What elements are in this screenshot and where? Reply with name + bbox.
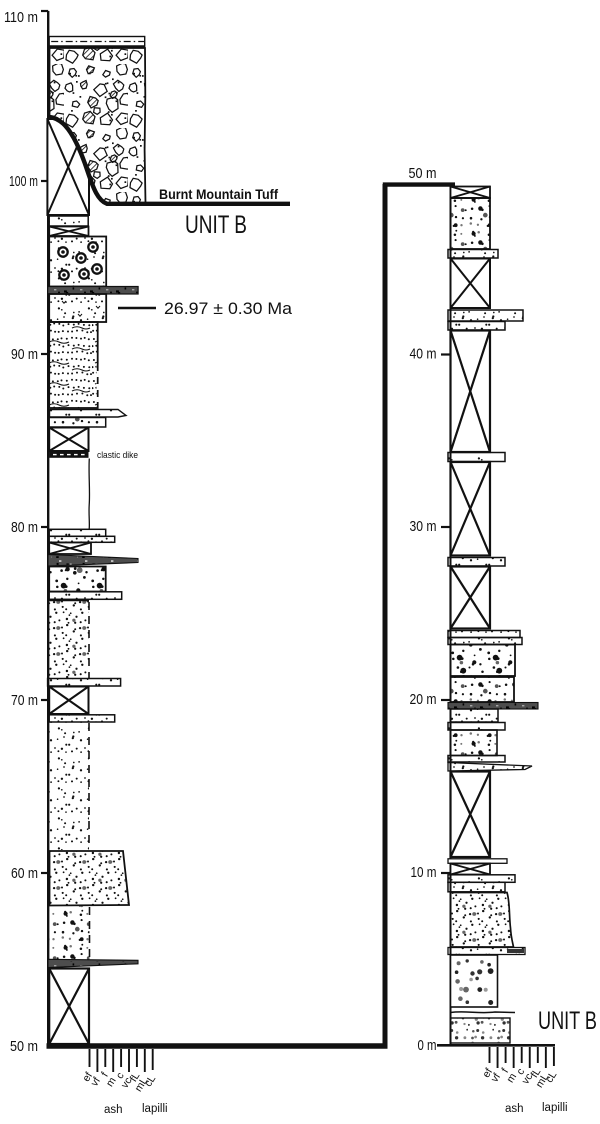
svg-text:UNIT B: UNIT B — [185, 211, 247, 239]
svg-text:lapilli: lapilli — [542, 1102, 568, 1114]
svg-text:ash: ash — [505, 1103, 524, 1115]
svg-text:100 m: 100 m — [9, 173, 38, 190]
svg-text:40 m: 40 m — [410, 346, 437, 363]
svg-text:clastic dike: clastic dike — [97, 450, 138, 460]
svg-text:50 m: 50 m — [409, 165, 437, 182]
svg-text:60 m: 60 m — [11, 865, 38, 882]
svg-text:70 m: 70 m — [11, 692, 38, 709]
svg-text:26.97 ± 0.30 Ma: 26.97 ± 0.30 Ma — [164, 299, 293, 318]
svg-text:10 m: 10 m — [411, 864, 437, 881]
svg-text:50 m: 50 m — [10, 1038, 38, 1055]
svg-text:Burnt Mountain Tuff: Burnt Mountain Tuff — [159, 186, 278, 202]
svg-text:UNIT B: UNIT B — [538, 1007, 597, 1035]
svg-text:lapilli: lapilli — [142, 1103, 168, 1115]
svg-text:90 m: 90 m — [11, 346, 38, 363]
svg-text:80 m: 80 m — [11, 519, 38, 536]
svg-text:ash: ash — [104, 1104, 123, 1116]
svg-text:30 m: 30 m — [410, 518, 437, 535]
svg-text:20 m: 20 m — [410, 691, 437, 708]
svg-text:0 m: 0 m — [418, 1037, 437, 1054]
svg-text:110 m: 110 m — [4, 9, 38, 26]
